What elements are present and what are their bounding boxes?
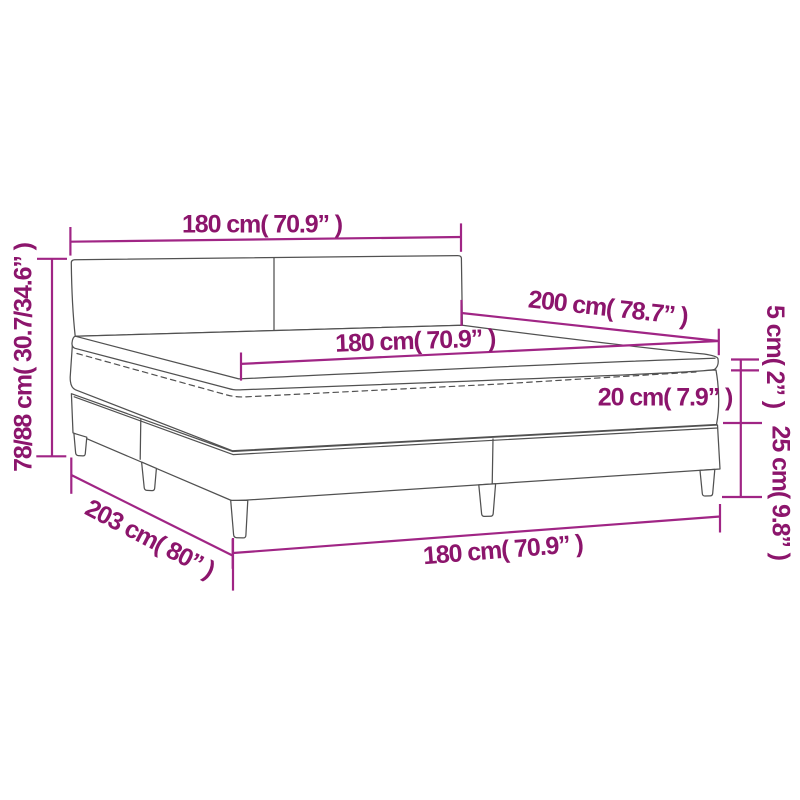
svg-text:20 cm( 7.9” ): 20 cm( 7.9” ) (598, 383, 733, 411)
svg-text:78/88 cm( 30.7/34.6” ): 78/88 cm( 30.7/34.6” ) (10, 242, 38, 472)
svg-text:180 cm( 70.9” ): 180 cm( 70.9” ) (182, 211, 343, 239)
svg-text:25 cm( 9.8” ): 25 cm( 9.8” ) (767, 426, 795, 561)
svg-text:180 cm( 70.9” ): 180 cm( 70.9” ) (335, 324, 497, 358)
svg-text:5 cm( 2” ): 5 cm( 2” ) (761, 305, 789, 409)
